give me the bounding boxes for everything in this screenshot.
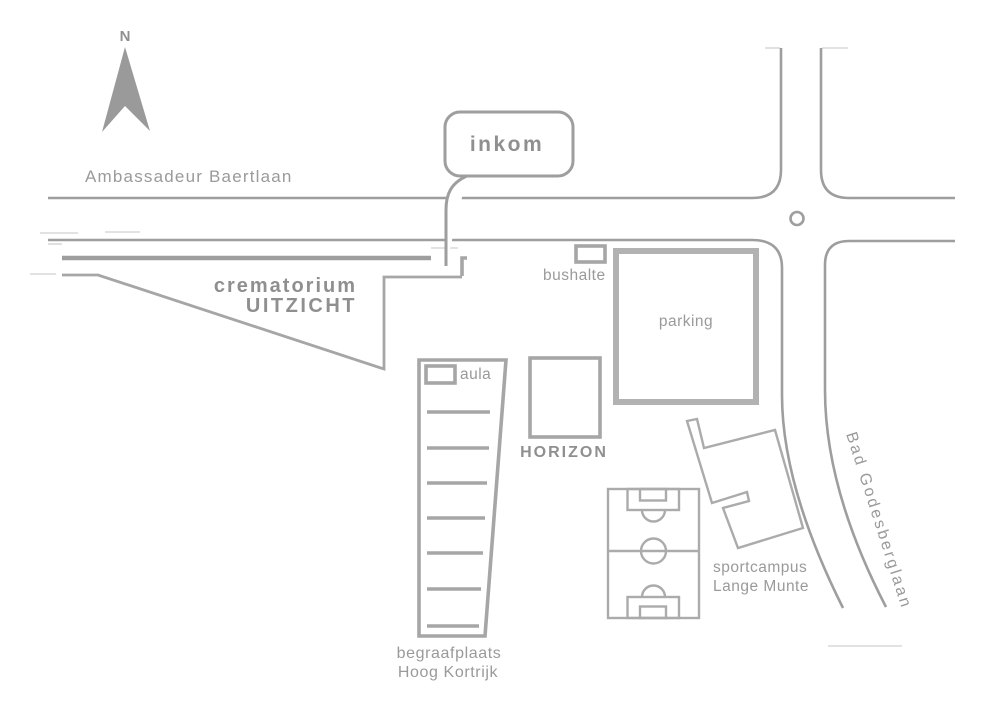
entrance-hook [462, 258, 467, 276]
north-label: N [120, 28, 131, 45]
site-map: N crematorium UITZICHT inkom [0, 0, 1000, 703]
grave-rows [427, 412, 490, 626]
field-outline [608, 489, 699, 618]
road-edge-top-right [821, 48, 955, 198]
begraafplaats-outline [419, 360, 506, 636]
sportcampus-label-line2: Lange Munte [713, 578, 809, 595]
goal-box-top [640, 489, 666, 501]
horizon-building: HORIZON [520, 358, 608, 461]
crematorium-label-line1: crematorium [214, 275, 357, 297]
sportcampus: sportcampus Lange Munte [687, 419, 809, 595]
site-map-canvas: N crematorium UITZICHT inkom [0, 0, 1000, 703]
begraafplaats: aula begraafplaats Hoog Kortrijk [397, 360, 506, 681]
bushalte-label: bushalte [543, 267, 606, 284]
begraafplaats-label-line1: begraafplaats [397, 645, 502, 662]
parking: parking [616, 251, 756, 402]
aula-label: aula [460, 366, 491, 383]
penalty-arc-bottom [642, 586, 665, 598]
crematorium-label-line2: UITZICHT [246, 295, 357, 317]
crematorium-site: crematorium UITZICHT [62, 258, 467, 369]
aula-marker [426, 366, 455, 383]
street-label-bad-godesberglaan: Bad Godesberglaan [842, 430, 914, 611]
goal-box-bottom [640, 607, 666, 619]
inkom-callout-tail [446, 176, 467, 266]
north-arrow-icon [102, 47, 150, 132]
roundabout-circle [791, 212, 804, 225]
compass: N [102, 28, 150, 132]
parking-label: parking [659, 313, 713, 330]
inkom-callout: inkom [445, 112, 573, 266]
begraafplaats-label-line2: Hoog Kortrijk [398, 664, 499, 681]
street-label-ambassadeur-baertlaan: Ambassadeur Baertlaan [85, 167, 293, 186]
horizon-label: HORIZON [520, 444, 608, 461]
horizon-outline [530, 358, 600, 437]
soccer-field [608, 489, 699, 618]
inkom-label: inkom [470, 133, 544, 156]
sportcampus-label-line1: sportcampus [713, 559, 807, 576]
street-labels: Ambassadeur Baertlaan Bad Godesberglaan [85, 167, 915, 611]
penalty-arc-top [642, 510, 665, 522]
bushalte-marker [576, 246, 605, 262]
bushalte: bushalte [543, 246, 606, 284]
